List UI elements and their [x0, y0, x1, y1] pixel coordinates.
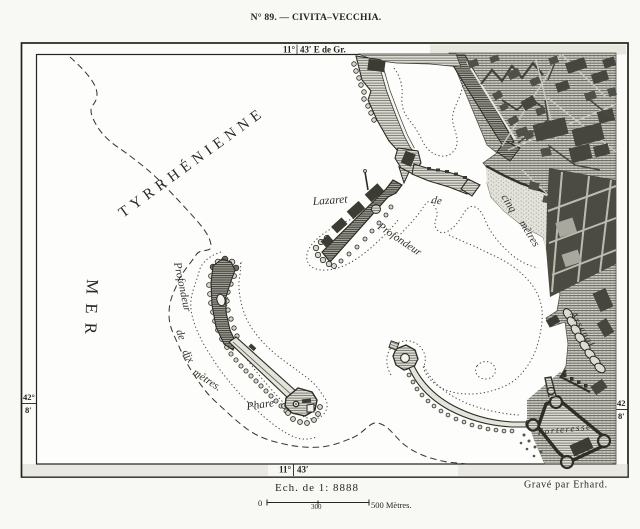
svg-text:42: 42: [617, 398, 626, 408]
svg-text:Ech. de 1: 8888: Ech. de 1: 8888: [275, 482, 359, 494]
svg-text:8′: 8′: [618, 411, 625, 421]
svg-text:MER: MER: [81, 279, 102, 343]
svg-text:Gravé par Erhard.: Gravé par Erhard.: [524, 480, 608, 491]
svg-text:8′: 8′: [25, 405, 32, 415]
svg-text:N° 89. — CIVITA–VECCHIA.: N° 89. — CIVITA–VECCHIA.: [251, 12, 382, 23]
svg-text:500 Mètres.: 500 Mètres.: [371, 500, 412, 510]
svg-text:11°: 11°: [279, 465, 292, 475]
svg-text:300: 300: [311, 503, 322, 511]
svg-text:Lazaret: Lazaret: [311, 194, 348, 209]
svg-text:0: 0: [258, 498, 262, 508]
svg-text:de: de: [431, 194, 443, 207]
svg-text:42°: 42°: [23, 392, 35, 402]
svg-text:43′: 43′: [297, 465, 309, 475]
svg-text:43′ E de Gr.: 43′ E de Gr.: [300, 45, 346, 55]
svg-text:11°: 11°: [283, 45, 296, 55]
